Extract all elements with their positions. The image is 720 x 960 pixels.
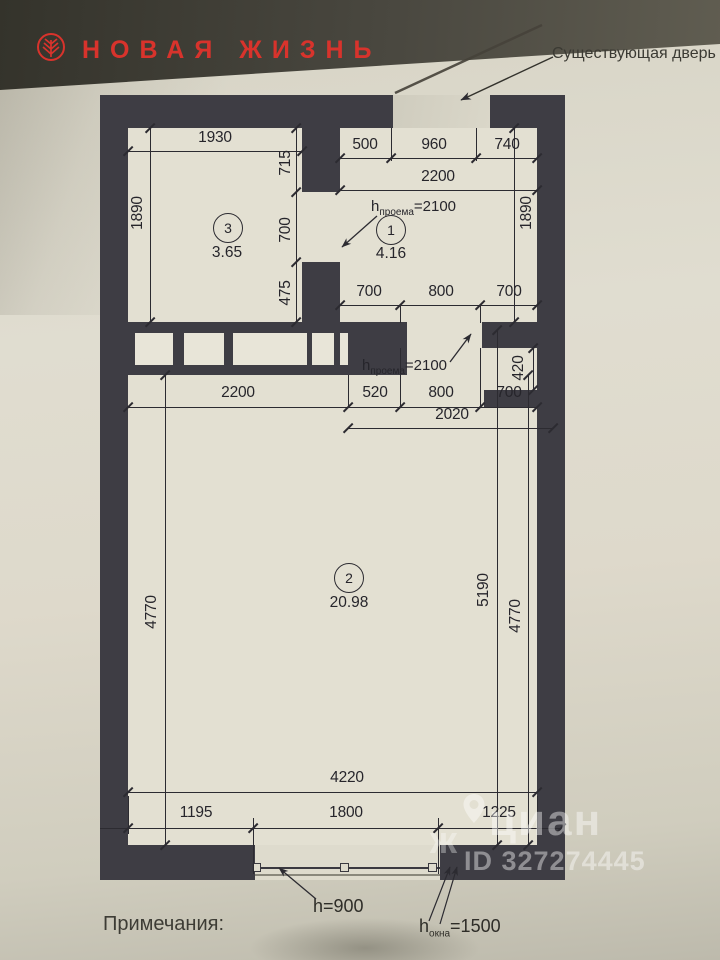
wall-left bbox=[100, 95, 128, 880]
opening-sub: проема bbox=[379, 207, 414, 218]
dim-line bbox=[348, 428, 553, 429]
dim-label: 4220 bbox=[330, 769, 364, 787]
window-sill-height-label: h=900 bbox=[313, 896, 364, 917]
window-mullion bbox=[340, 863, 349, 872]
room-2-area: 20.98 bbox=[330, 594, 369, 612]
dim-line bbox=[128, 151, 302, 152]
watermark-partial-glyph: ж bbox=[430, 820, 457, 863]
band-niche bbox=[312, 333, 334, 365]
dim-label: 740 bbox=[494, 136, 519, 154]
room-1-badge: 1 bbox=[376, 215, 406, 245]
extension-line bbox=[480, 348, 481, 408]
dim-label: 500 bbox=[352, 136, 377, 154]
dim-line bbox=[497, 330, 498, 845]
dim-line bbox=[340, 190, 537, 191]
dim-label: 475 bbox=[277, 280, 295, 305]
dim-label: 520 bbox=[362, 384, 387, 402]
band-niche bbox=[135, 333, 173, 365]
room-3-area: 3.65 bbox=[212, 244, 242, 262]
dim-label: 960 bbox=[421, 136, 446, 154]
opening-height-label-2: hпроема=2100 bbox=[362, 357, 447, 377]
door-opening-room2 bbox=[400, 322, 482, 348]
opening-value: =2100 bbox=[414, 198, 456, 215]
window-height-label: hокна=1500 bbox=[419, 916, 501, 940]
dim-label: 1800 bbox=[329, 804, 363, 822]
opening-prefix: h bbox=[419, 916, 429, 936]
extension-line bbox=[400, 305, 401, 323]
dim-label: 2200 bbox=[221, 384, 255, 402]
room-3-badge: 3 bbox=[213, 213, 243, 243]
dim-line bbox=[340, 305, 537, 306]
opening-height-label-1: hпроема=2100 bbox=[371, 198, 456, 218]
dim-label: 1195 bbox=[180, 804, 213, 822]
opening-value: =1500 bbox=[450, 916, 501, 936]
dim-label: 4770 bbox=[507, 599, 525, 633]
wall-top bbox=[100, 95, 565, 128]
dim-label: 4770 bbox=[143, 595, 161, 629]
dim-line bbox=[340, 158, 537, 159]
dim-label: 715 bbox=[277, 150, 295, 175]
watermark-id: ID 327274445 bbox=[464, 846, 646, 877]
dim-line bbox=[165, 375, 166, 845]
dim-label: 700 bbox=[496, 283, 521, 301]
notes-label: Примечания: bbox=[103, 913, 224, 936]
room-3-number: 3 bbox=[224, 220, 232, 236]
dim-label: 2200 bbox=[421, 168, 455, 186]
dim-label: 700 bbox=[496, 384, 521, 402]
dim-line bbox=[128, 792, 537, 793]
dim-line bbox=[150, 128, 151, 322]
room-1-number: 1 bbox=[387, 222, 395, 238]
door-opening-top bbox=[393, 95, 490, 128]
dim-line bbox=[296, 128, 297, 322]
dim-line bbox=[533, 348, 534, 390]
extension-line bbox=[480, 305, 481, 323]
room-1-area: 4.16 bbox=[376, 245, 406, 263]
dim-label: 800 bbox=[428, 283, 453, 301]
floor-plan-photo: НОВАЯ ЖИЗНЬ Существующая дверь h bbox=[0, 0, 720, 960]
wall-right bbox=[537, 95, 565, 880]
dim-label: 5190 bbox=[475, 573, 493, 607]
opening-sub: проема bbox=[370, 366, 405, 377]
window-sill-line bbox=[255, 874, 440, 876]
door-opening-mid bbox=[302, 192, 340, 262]
dim-label: 1890 bbox=[129, 196, 147, 230]
room-2-badge: 2 bbox=[334, 563, 364, 593]
dim-line bbox=[528, 375, 529, 845]
dim-label: 700 bbox=[356, 283, 381, 301]
dim-label: 1890 bbox=[518, 196, 536, 230]
dim-label: 2020 bbox=[435, 406, 469, 424]
dim-line bbox=[128, 407, 348, 408]
window-mullion bbox=[428, 863, 437, 872]
dim-label: 1930 bbox=[198, 129, 232, 147]
opening-value: =2100 bbox=[405, 357, 447, 374]
existing-door-note: Существующая дверь h bbox=[552, 45, 720, 63]
watermark-brand: циан bbox=[489, 796, 602, 846]
opening-sub: окна bbox=[429, 929, 450, 940]
band-niche bbox=[340, 333, 348, 365]
band-niche bbox=[184, 333, 224, 365]
dim-label: 700 bbox=[277, 217, 295, 242]
room-2-number: 2 bbox=[345, 570, 353, 586]
dim-label: 800 bbox=[428, 384, 453, 402]
dim-label: 420 bbox=[510, 355, 528, 380]
band-niche bbox=[233, 333, 307, 365]
logo-text: НОВАЯ ЖИЗНЬ bbox=[82, 36, 382, 65]
